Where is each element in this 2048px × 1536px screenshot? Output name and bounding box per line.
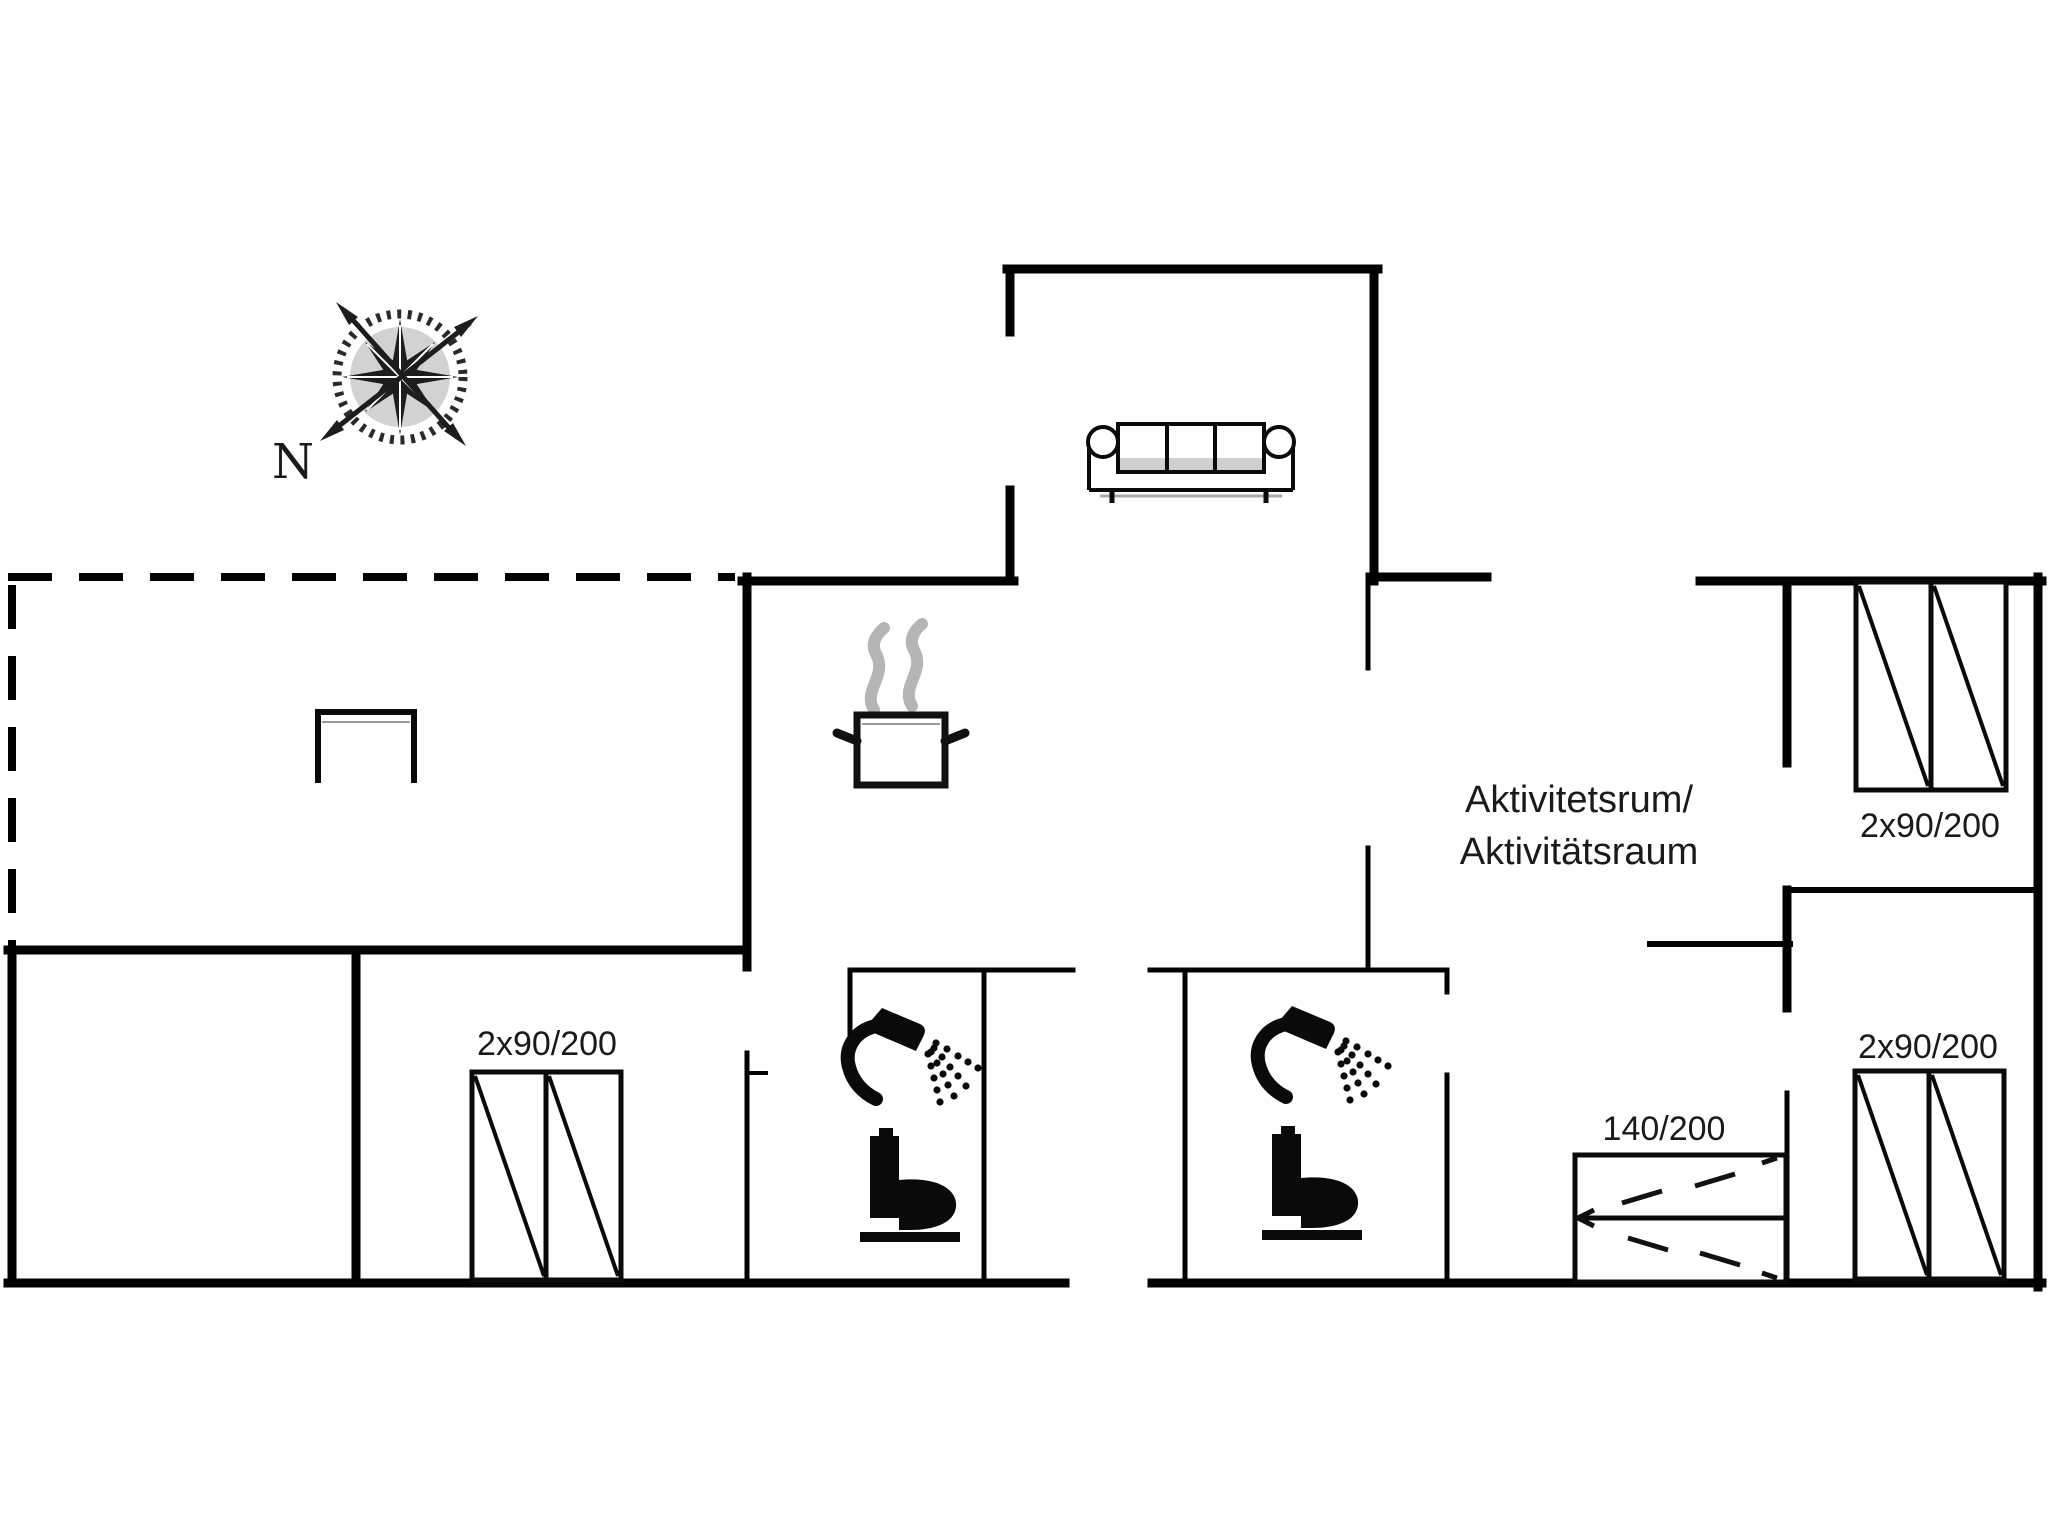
floor-plan-canvas: N 2x90/200 — [0, 0, 2048, 1536]
bed-label-double-140: 140/200 — [1603, 1110, 1726, 1148]
background — [0, 0, 2048, 1536]
double-bed-140 — [1575, 1155, 1786, 1282]
bed-pair-bottom-right-bedroom — [1855, 1071, 2004, 1279]
north-label: N — [272, 434, 314, 490]
sofa-icon — [1088, 424, 1294, 503]
activity-room-label-line2: Aktivitätsraum — [1460, 831, 1699, 873]
floor-plan-drawing: N 2x90/200 — [0, 0, 2048, 1536]
bed-label-left-bedroom: 2x90/200 — [477, 1025, 617, 1063]
activity-room-label-line1: Aktivitetsrum/ — [1465, 779, 1693, 821]
bed-pair-left-bedroom — [472, 1072, 621, 1280]
bed-label-bottom-right-bedroom: 2x90/200 — [1858, 1028, 1998, 1066]
bed-pair-top-right-bedroom — [1856, 582, 2006, 790]
bed-label-top-right-bedroom: 2x90/200 — [1860, 807, 2000, 845]
